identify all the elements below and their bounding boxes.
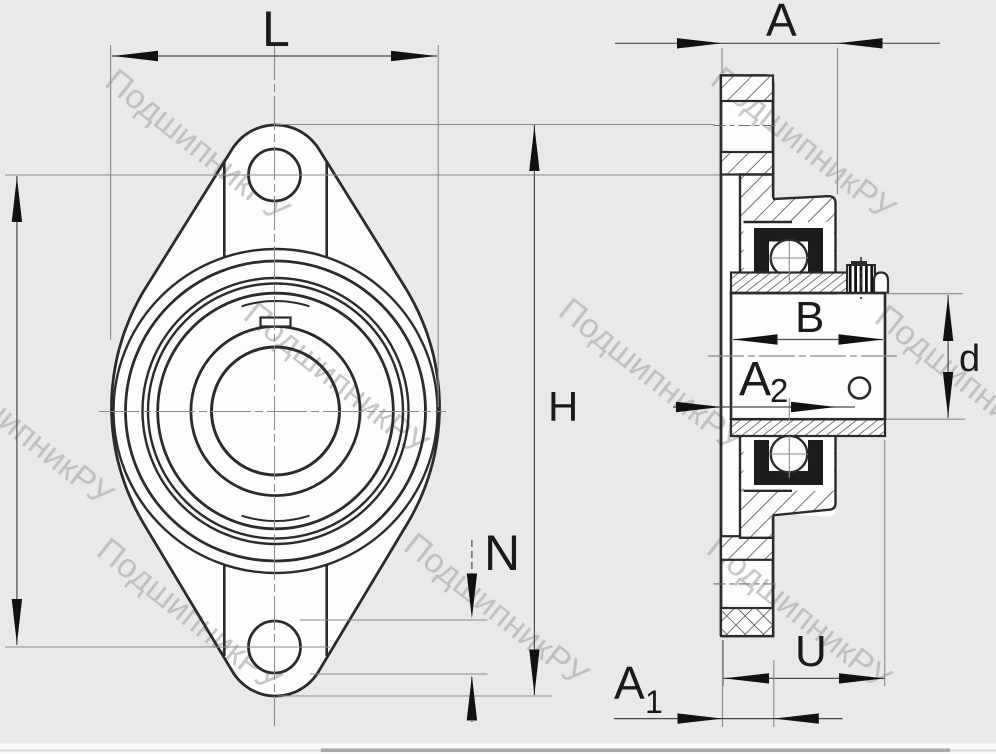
svg-text:H: H <box>548 383 578 430</box>
svg-text:B: B <box>795 293 824 342</box>
svg-text:A: A <box>766 0 797 46</box>
svg-text:U: U <box>795 627 827 676</box>
svg-text:N: N <box>484 525 520 581</box>
svg-text:A: A <box>614 657 645 709</box>
svg-text:A: A <box>739 353 771 406</box>
svg-text:1: 1 <box>645 684 663 720</box>
svg-text:2: 2 <box>770 372 788 409</box>
svg-text:L: L <box>262 1 290 57</box>
svg-text:d: d <box>959 338 980 380</box>
